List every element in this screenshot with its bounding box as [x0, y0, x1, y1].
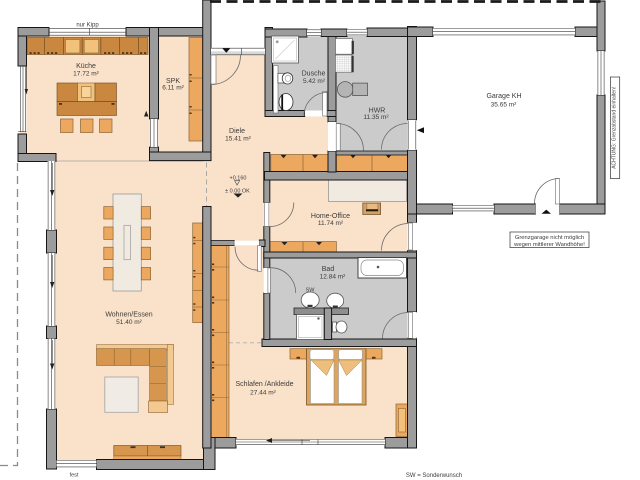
svg-text:Diele: Diele [229, 128, 245, 135]
svg-text:51.40 m²: 51.40 m² [116, 319, 142, 326]
svg-text:Grenzgarage nicht möglich: Grenzgarage nicht möglich [515, 235, 584, 241]
svg-text:nur Kipp: nur Kipp [76, 23, 99, 29]
svg-text:Garage KH: Garage KH [486, 93, 521, 100]
svg-text:27.44 m²: 27.44 m² [250, 390, 276, 397]
svg-text:35.65 m²: 35.65 m² [491, 102, 517, 109]
svg-text:Küche: Küche [76, 63, 96, 70]
svg-text:6.11 m²: 6.11 m² [162, 85, 184, 92]
svg-text:SW = Sonderwunsch: SW = Sonderwunsch [406, 473, 462, 479]
svg-text:5.42 m²: 5.42 m² [303, 78, 326, 85]
svg-text:Wohnen/Essen: Wohnen/Essen [105, 312, 152, 319]
svg-text:11.74 m²: 11.74 m² [318, 220, 344, 227]
svg-text:SW: SW [306, 288, 316, 294]
svg-text:17.72 m²: 17.72 m² [73, 71, 99, 78]
svg-text:Dusche: Dusche [302, 71, 326, 78]
svg-text:Home-Office: Home-Office [311, 213, 350, 220]
svg-text:12.84 m²: 12.84 m² [320, 274, 346, 281]
svg-text:11.35 m²: 11.35 m² [363, 114, 389, 121]
svg-text:ACHTUNG: Grenzabstand einhalte: ACHTUNG: Grenzabstand einhalten! [611, 87, 617, 169]
svg-text:Bad: Bad [322, 266, 335, 273]
svg-text:15.41 m²: 15.41 m² [225, 136, 251, 143]
svg-text:Schlafen /Ankleide: Schlafen /Ankleide [236, 381, 294, 388]
svg-text:fest: fest [70, 473, 79, 479]
svg-text:wegen mittlerer Wandhöhe!: wegen mittlerer Wandhöhe! [513, 242, 585, 248]
